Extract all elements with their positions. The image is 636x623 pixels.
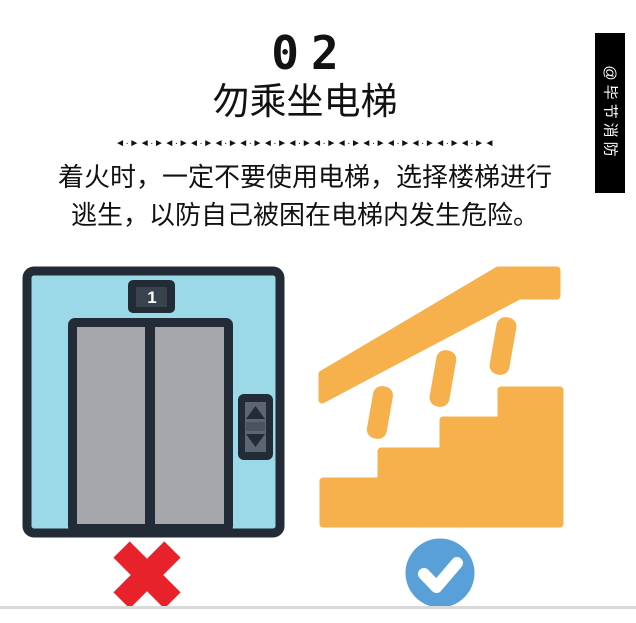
section-number: 02 <box>0 30 610 76</box>
fire-safety-poster: 02 勿乘坐电梯 ◄·►◄·►◄·►◄·►◄·►◄·►◄·►◄·►◄·►◄·►◄… <box>0 0 636 623</box>
x-mark-shape <box>112 540 182 610</box>
stairs-baluster-3 <box>488 316 518 377</box>
watermark-text: @毕节消防 <box>603 65 618 160</box>
allowed-check-icon <box>405 538 475 608</box>
elevator-door-right <box>155 327 224 524</box>
stairs-baluster-2 <box>428 349 458 409</box>
decorative-divider: ◄·►◄·►◄·►◄·►◄·►◄·►◄·►◄·►◄·►◄·►◄·►◄·►◄·►◄… <box>0 139 610 149</box>
elevator-door-left <box>77 327 145 524</box>
body-text-line-2: 逃生，以防自己被困在电梯内发生危险。 <box>0 196 610 234</box>
page-title: 勿乘坐电梯 <box>0 83 610 120</box>
staircase-steps <box>323 390 560 524</box>
stairs-illustration <box>314 258 566 532</box>
stairs-baluster-1 <box>365 385 394 441</box>
elevator-illustration: 1 <box>22 266 285 538</box>
floor-indicator-label: 1 <box>147 288 156 307</box>
bottom-divider-line <box>0 606 636 609</box>
watermark-banner: @毕节消防 <box>595 33 625 193</box>
forbidden-x-icon <box>112 540 182 610</box>
body-text: 着火时，一定不要使用电梯，选择楼梯进行 逃生，以防自己被困在电梯内发生危险。 <box>0 158 610 234</box>
call-button-divider <box>246 422 265 431</box>
check-circle <box>406 539 475 608</box>
body-text-line-1: 着火时，一定不要使用电梯，选择楼梯进行 <box>0 158 610 196</box>
